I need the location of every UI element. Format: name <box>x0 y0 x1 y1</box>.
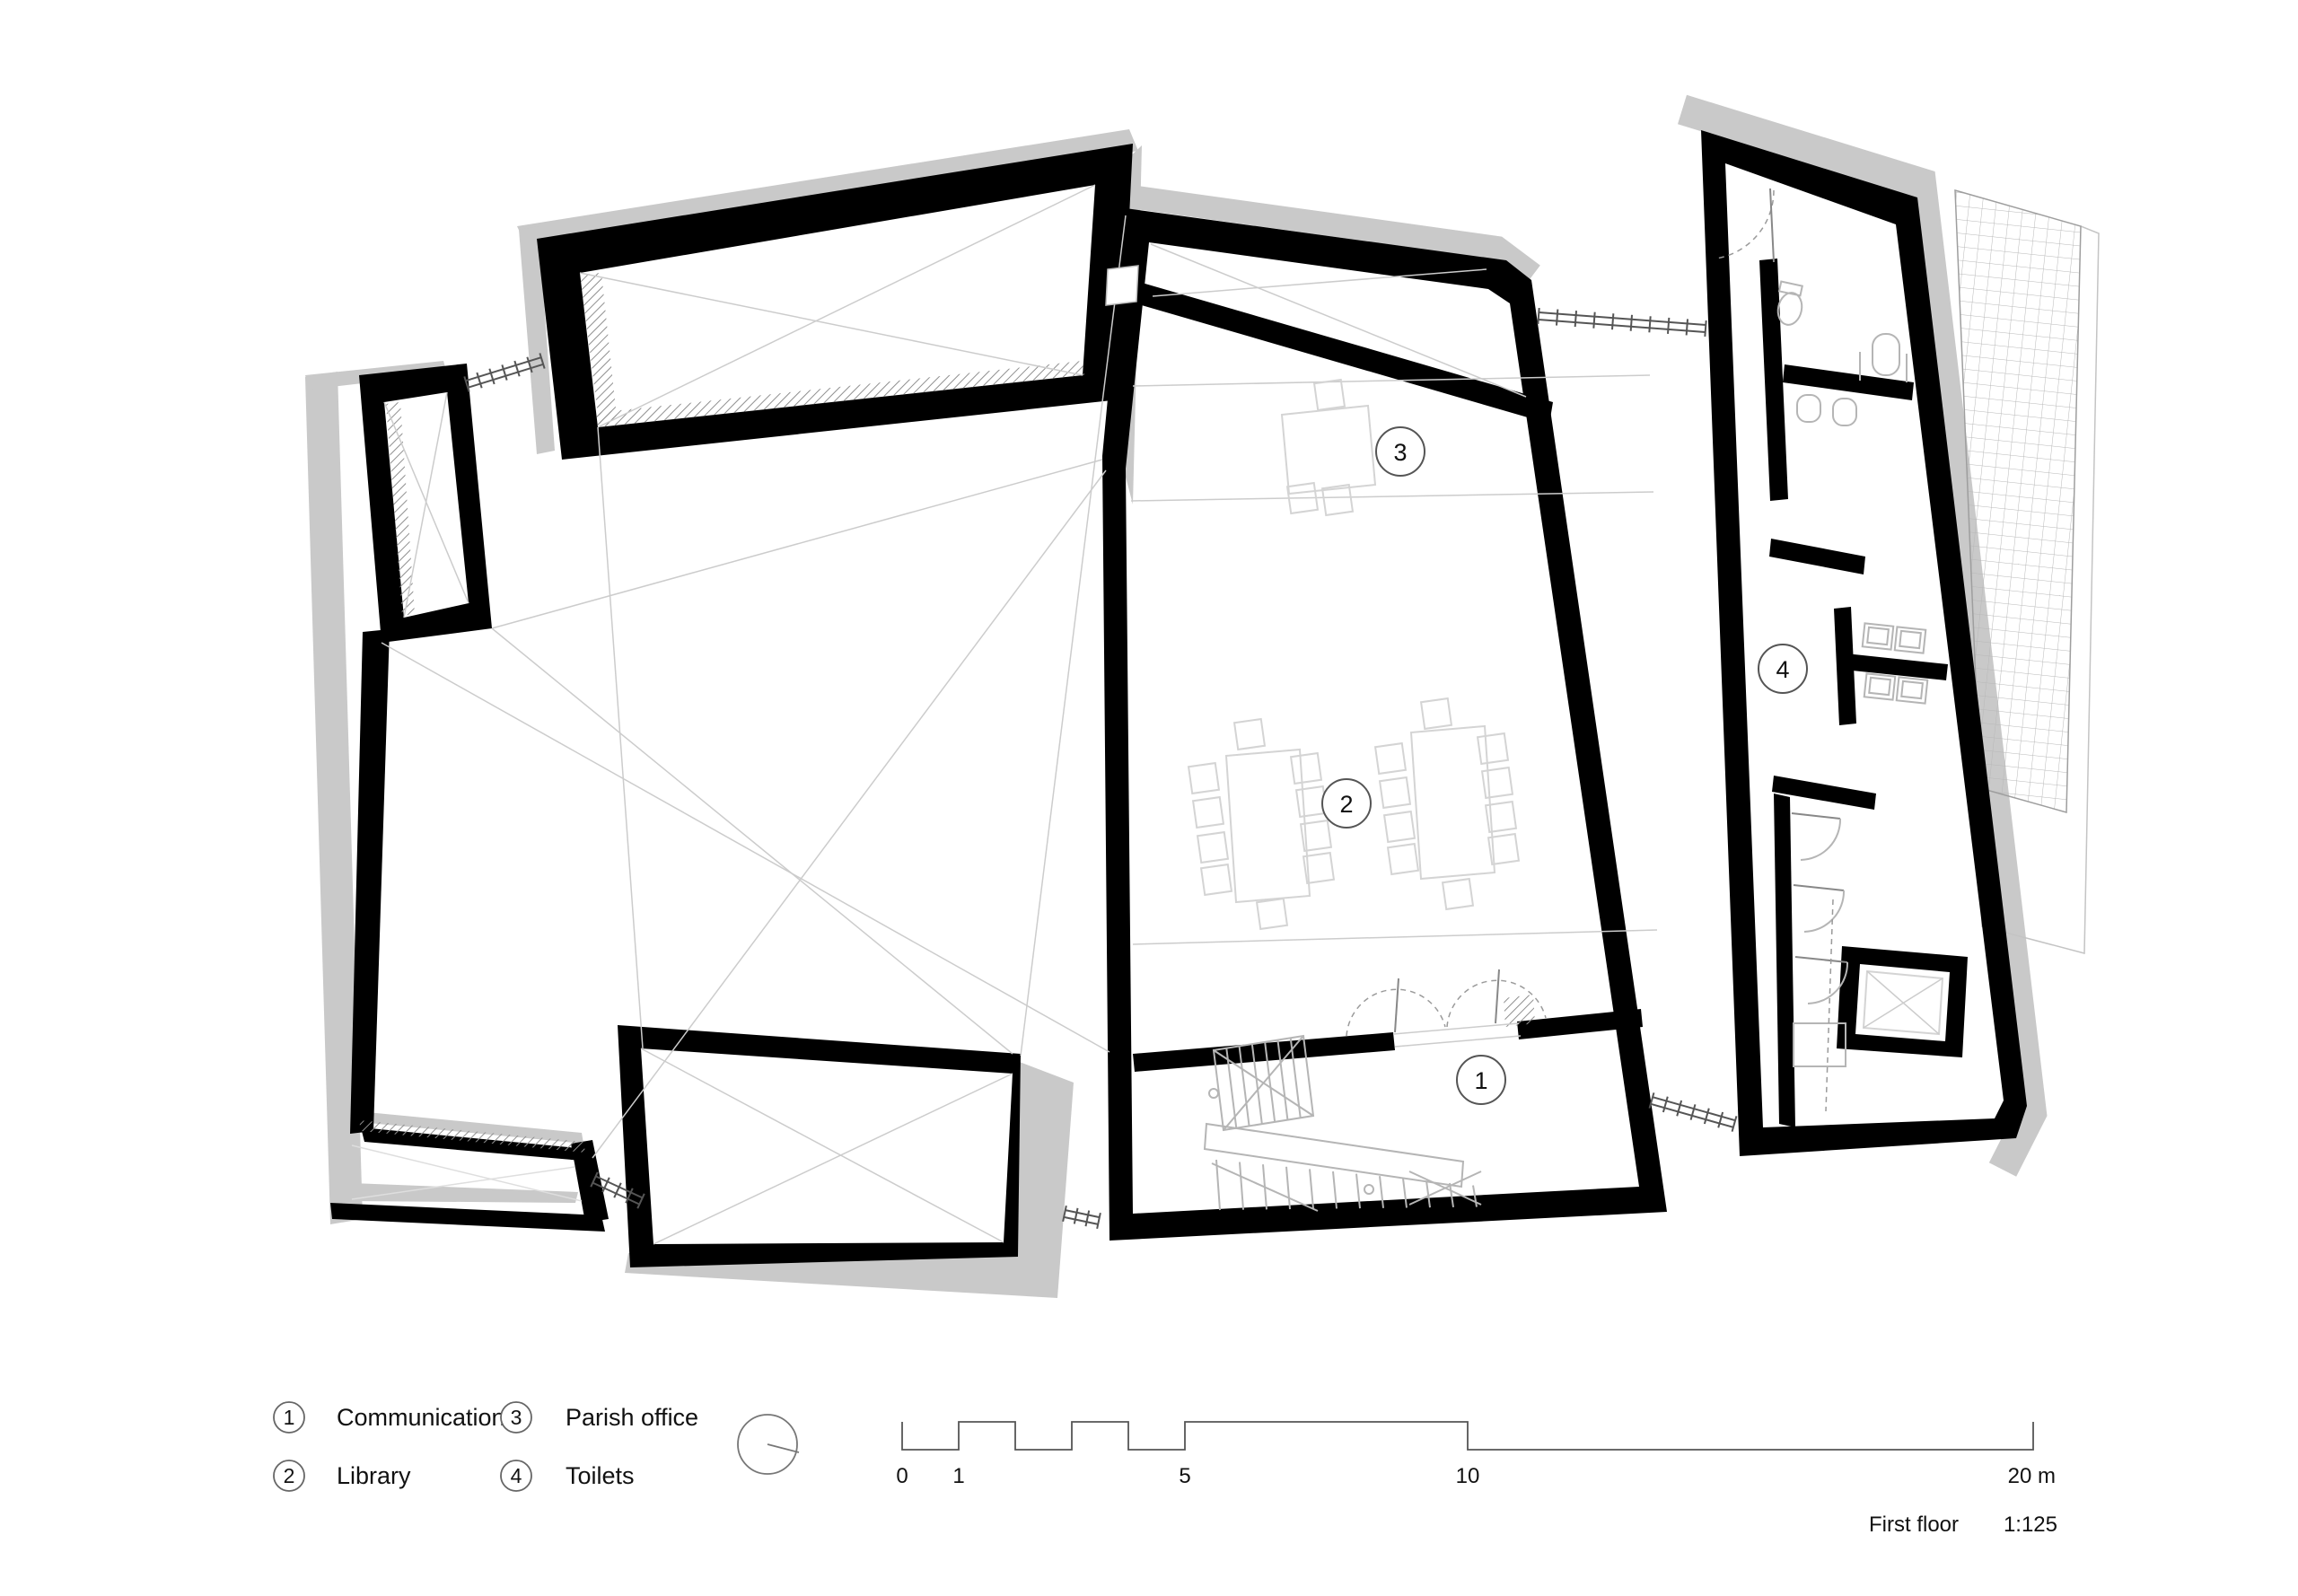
scale-tick-label: 0 <box>896 1464 908 1488</box>
legend-label: Communication <box>337 1404 505 1431</box>
legend-label: Library <box>337 1462 411 1489</box>
scale-tick-label: 10 <box>1456 1464 1480 1488</box>
chair <box>1201 864 1232 895</box>
urinal-fixture <box>1833 399 1856 425</box>
title-block: First floor 1:125 <box>1869 1513 2057 1537</box>
legend-item-toilets: 4 Toilets <box>501 1460 635 1491</box>
legend-number: 1 <box>284 1406 295 1429</box>
drawing-scale: 1:125 <box>2004 1513 2057 1537</box>
room-number: 1 <box>1474 1067 1487 1094</box>
furniture <box>1188 380 1519 929</box>
footbridge <box>1063 1206 1101 1229</box>
chair <box>1384 811 1415 842</box>
scale-tick-label: 1 <box>952 1464 964 1488</box>
elevator-cab <box>1864 971 1943 1034</box>
scale-tick-label: 20 m <box>2008 1464 2056 1488</box>
room-number: 4 <box>1776 656 1789 683</box>
legend-number: 2 <box>284 1464 295 1487</box>
chair <box>1188 763 1219 794</box>
library-table <box>1411 726 1495 879</box>
urinal-fixture <box>1797 395 1820 422</box>
scale-bar: 0 1 5 10 20 m <box>896 1422 2056 1488</box>
chair <box>1314 380 1345 410</box>
legend-label: Parish office <box>566 1404 698 1431</box>
floor-plan-page: 1 2 3 4 1 Communication 2 Library 3 <box>0 0 2298 1596</box>
scale-tick-label: 5 <box>1179 1464 1190 1488</box>
desk-parish-office <box>1282 406 1375 494</box>
chair <box>1388 844 1418 874</box>
legend-number: 4 <box>511 1464 522 1487</box>
floor-plan-drawing: 1 2 3 4 1 Communication 2 Library 3 <box>0 0 2298 1596</box>
room-marker-parish-office: 3 <box>1376 427 1425 476</box>
legend-label: Toilets <box>566 1462 635 1489</box>
room-marker-communication: 1 <box>1457 1056 1505 1104</box>
floor-title: First floor <box>1869 1513 1959 1537</box>
footbridge <box>1538 308 1706 337</box>
chair <box>1443 879 1473 909</box>
footbridge <box>1650 1092 1737 1131</box>
interior-walls <box>1129 259 1968 1127</box>
library-table <box>1226 750 1310 902</box>
volume-connector <box>1106 266 1138 305</box>
room-number: 2 <box>1339 791 1353 818</box>
chair <box>1421 698 1452 729</box>
chair <box>1197 832 1228 863</box>
chair <box>1375 743 1406 774</box>
chair <box>1234 719 1265 750</box>
legend-item-library: 2 Library <box>274 1460 411 1491</box>
chair <box>1193 797 1224 828</box>
chair <box>1257 899 1287 929</box>
north-indicator <box>738 1415 799 1474</box>
room-marker-toilets: 4 <box>1759 645 1807 693</box>
room-marker-library: 2 <box>1322 779 1371 828</box>
legend: 1 Communication 2 Library 3 Parish offic… <box>274 1402 698 1491</box>
urinal-fixture <box>1873 334 1899 375</box>
chair <box>1380 777 1410 808</box>
room-number: 3 <box>1393 439 1407 466</box>
legend-number: 3 <box>511 1406 522 1429</box>
legend-item-parish-office: 3 Parish office <box>501 1402 698 1433</box>
legend-item-communication: 1 Communication <box>274 1402 505 1433</box>
sight-lines <box>382 215 1126 1158</box>
